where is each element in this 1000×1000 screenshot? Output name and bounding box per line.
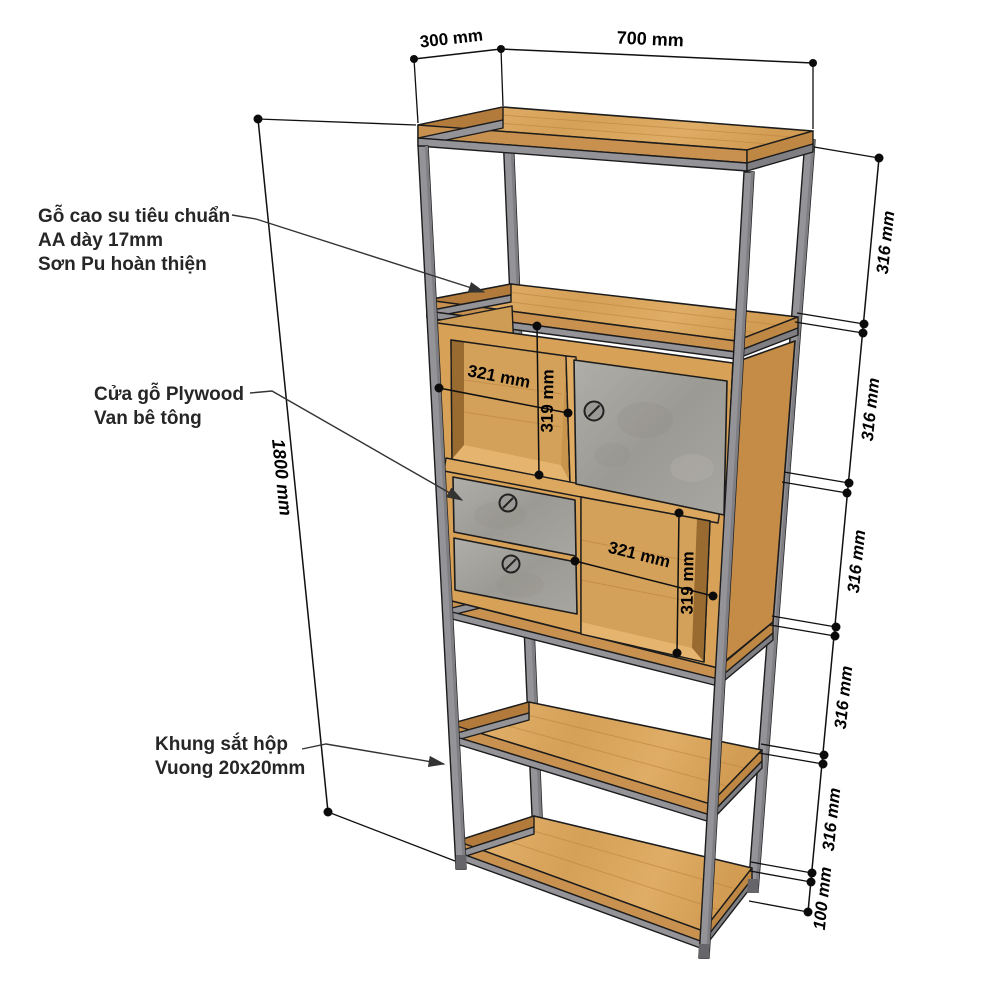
dim-label-316-4: 316 mm [831, 665, 857, 730]
back-right-foot [747, 879, 759, 893]
door-knob [585, 402, 604, 421]
frame-material-line2: Vuong 20x20mm [155, 758, 305, 779]
top-shelf [418, 107, 813, 171]
door-material-line2: Van bê tông [94, 408, 202, 429]
shelf-material-leader [232, 215, 484, 292]
dim-label-319-upper: 319 mm [537, 369, 557, 433]
door-material-line1: Cửa gỗ Plywood [94, 383, 244, 405]
drawer-knob [500, 495, 517, 512]
shelf-material-line1: Gỗ cao su tiêu chuẩn [38, 205, 230, 227]
dim-top-depth: 300 mm [410, 26, 505, 123]
shelf-material-line2: AA dày 17mm [38, 230, 163, 251]
technical-drawing-page: 300 mm 700 mm 1800 mm [0, 0, 1000, 1000]
drawer-knob [503, 556, 520, 573]
dim-label-700: 700 mm [616, 28, 684, 51]
furniture-drawing [418, 107, 815, 958]
shelf-material-line3: Sơn Pu hoàn thiện [38, 254, 207, 275]
dim-label-319-lower: 319 mm [677, 551, 697, 615]
shelf-unit-diagram: 300 mm 700 mm 1800 mm [0, 0, 1000, 1000]
annotation-frame-material: Khung sắt hộp Vuong 20x20mm [155, 733, 444, 779]
annotations: Gỗ cao su tiêu chuẩn AA dày 17mm Sơn Pu … [38, 205, 484, 779]
dim-label-316-1: 316 mm [873, 210, 899, 275]
dim-label-316-5: 316 mm [819, 787, 845, 852]
annotation-shelf-material: Gỗ cao su tiêu chuẩn AA dày 17mm Sơn Pu … [38, 205, 484, 292]
dim-label-316-3: 316 mm [844, 529, 870, 594]
frame-material-line1: Khung sắt hộp [155, 733, 288, 755]
dim-label-316-2: 316 mm [858, 377, 884, 442]
dim-label-300: 300 mm [419, 26, 484, 52]
